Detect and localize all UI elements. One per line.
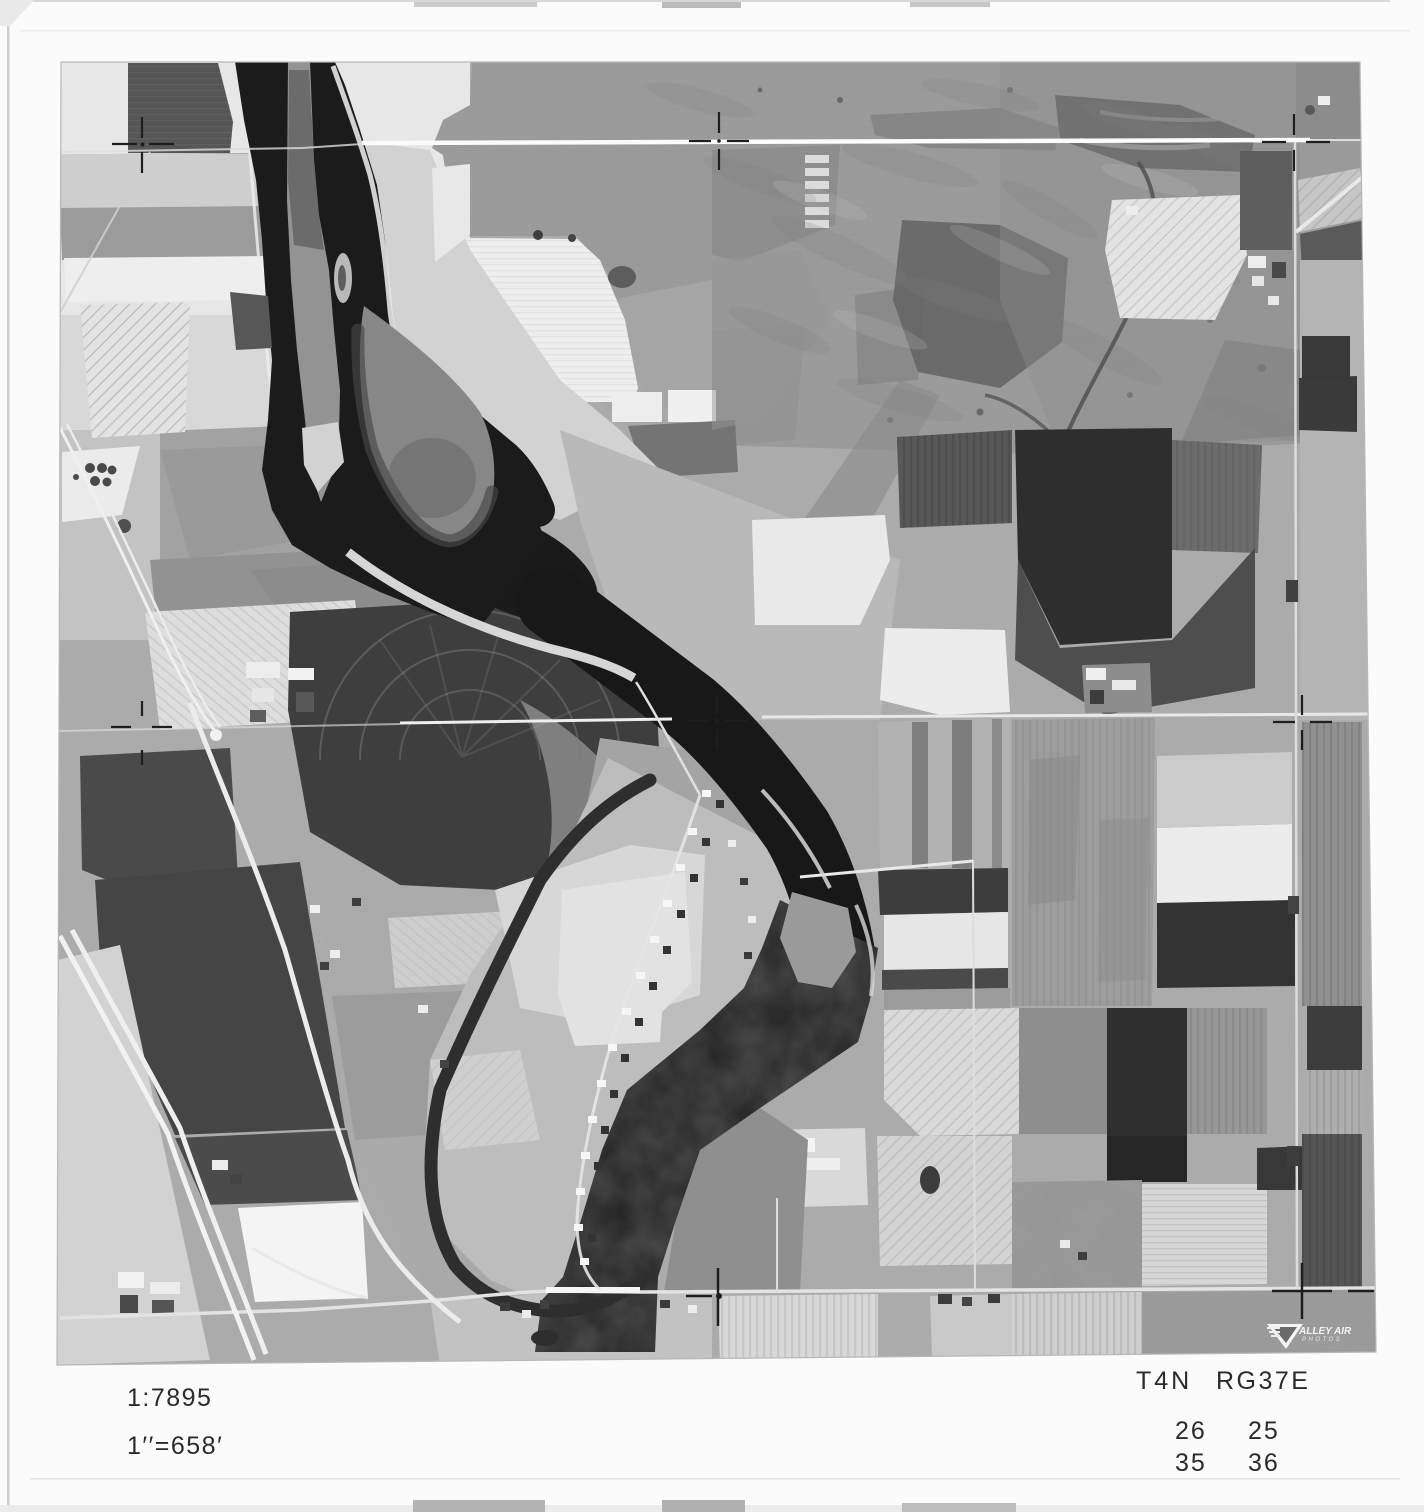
- svg-text:36: 36: [1248, 1449, 1280, 1477]
- svg-text:25: 25: [1248, 1417, 1280, 1445]
- svg-text:35: 35: [1175, 1449, 1207, 1477]
- svg-text:PHOTOS: PHOTOS: [1302, 1337, 1342, 1343]
- svg-text:26: 26: [1175, 1417, 1207, 1445]
- svg-text:1:7895: 1:7895: [127, 1384, 212, 1412]
- svg-text:RG37E: RG37E: [1216, 1367, 1310, 1395]
- svg-text:ALLEY AIR: ALLEY AIR: [1298, 1326, 1352, 1337]
- svg-text:1′′=658′: 1′′=658′: [127, 1432, 223, 1460]
- svg-text:T4N: T4N: [1136, 1367, 1192, 1395]
